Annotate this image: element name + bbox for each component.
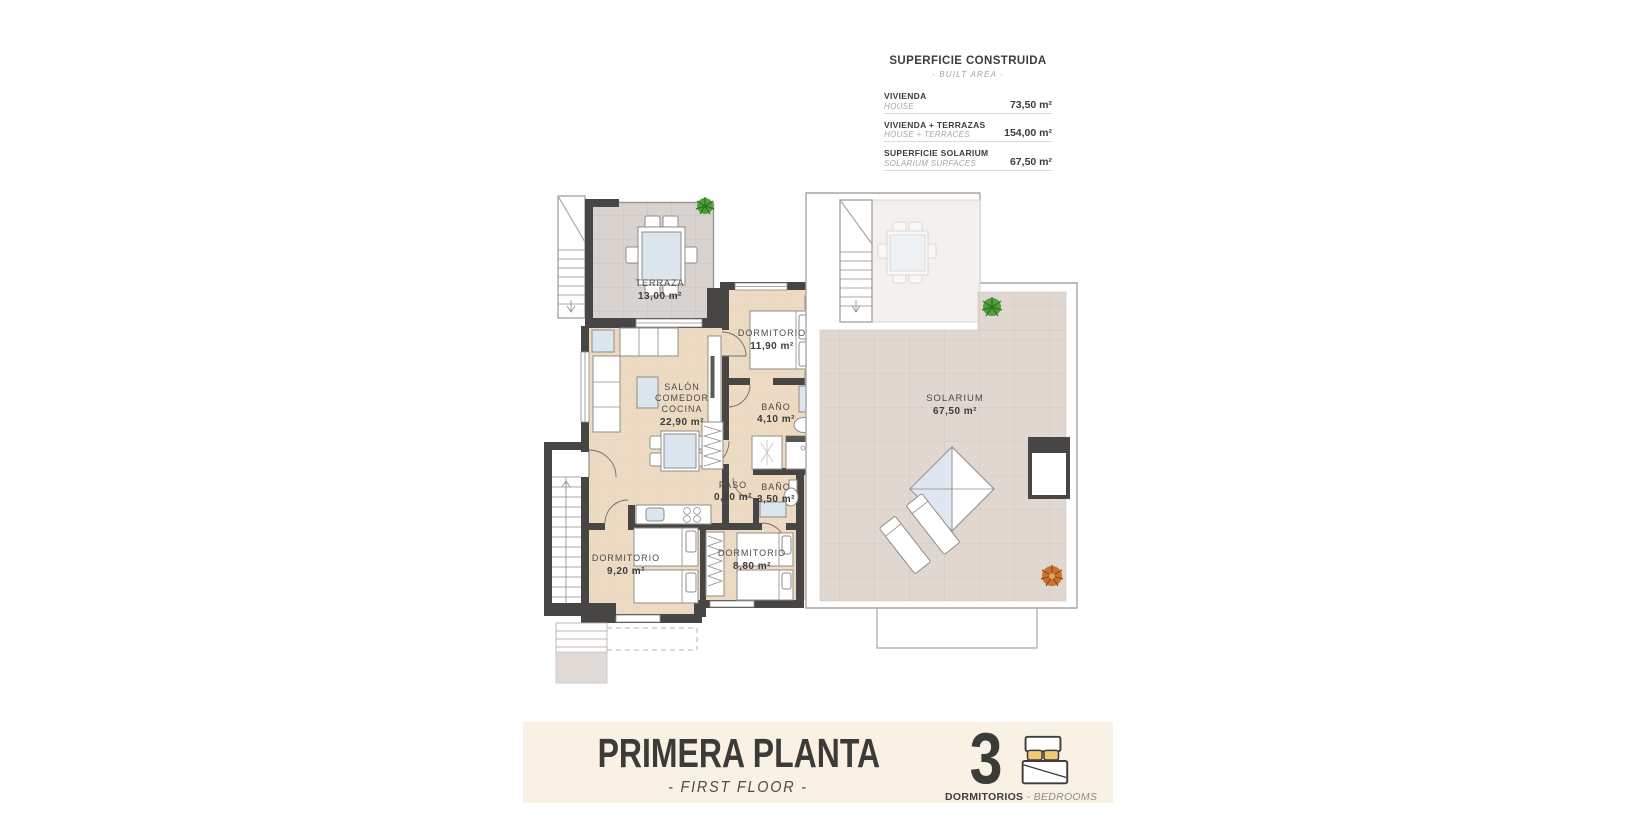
dorm1-area: 11,90 m² <box>750 341 794 352</box>
bedroom-closet <box>706 532 724 596</box>
bath1-area: 4,10 m² <box>757 414 795 425</box>
solarium-area: 67,50 m² <box>933 406 977 417</box>
floor-title-block: PRIMERA PLANTA - FIRST FLOOR - <box>558 730 918 797</box>
bedrooms-block: 3 DORMITORIOS - BEDROOMS <box>945 726 1095 803</box>
tv-unit <box>708 336 721 428</box>
bed-icon <box>1012 734 1074 788</box>
ghost-terrace <box>872 200 980 322</box>
dorm2-area: 9,20 m² <box>607 566 645 577</box>
terraza-label: TERRAZA <box>635 278 684 288</box>
bedrooms-count: 3 <box>970 730 1003 788</box>
bath2-label: BAÑO <box>761 482 791 492</box>
salon-area: 22,90 m² <box>660 417 704 428</box>
solarium-access-box <box>1028 437 1070 497</box>
terraza-area: 13,00 m² <box>638 291 682 302</box>
salon-label-1: SALÓN <box>664 382 700 392</box>
floor-title: PRIMERA PLANTA <box>598 730 879 777</box>
dorm3-area: 8,80 m² <box>733 561 771 572</box>
bath2-area: 3,50 m² <box>757 494 795 505</box>
bedrooms-label-en: - BEDROOMS <box>1023 791 1097 803</box>
salon-label-2: COMEDOR <box>655 393 709 403</box>
floor-plan-drawing: TERRAZA 13,00 m² SALÓN COMEDOR COCINA 22… <box>0 0 1638 840</box>
paso-label: PASO <box>719 480 747 490</box>
solarium-lower-step <box>877 608 1037 648</box>
pantry-closet <box>702 422 723 469</box>
dorm3-label: DORMITORIO <box>718 548 786 558</box>
terrace-stair <box>558 196 585 318</box>
exterior-stairs <box>556 623 697 683</box>
floorplan-page: SUPERFICIE CONSTRUIDA - BUILT AREA - VIV… <box>0 0 1638 840</box>
dorm2-label: DORMITORIO <box>592 553 660 563</box>
kitchen-counter <box>636 505 711 524</box>
apartment-unit: TERRAZA 13,00 m² SALÓN COMEDOR COCINA 22… <box>544 196 826 683</box>
floor-subtitle: - FIRST FLOOR - <box>576 779 900 797</box>
dorm1-label: DORMITORIO <box>738 328 806 338</box>
solarium-label: SOLARIUM <box>926 393 984 404</box>
salon-label-3: COCINA <box>661 404 702 414</box>
paso-area: 0,90 m² <box>714 492 752 503</box>
solarium-unit: SOLARIUM 67,50 m² <box>806 193 1077 648</box>
floor-banner: PRIMERA PLANTA - FIRST FLOOR - 3 DORMITO… <box>523 722 1113 803</box>
solarium-stair <box>840 200 872 322</box>
bath1-label: BAÑO <box>761 402 791 412</box>
